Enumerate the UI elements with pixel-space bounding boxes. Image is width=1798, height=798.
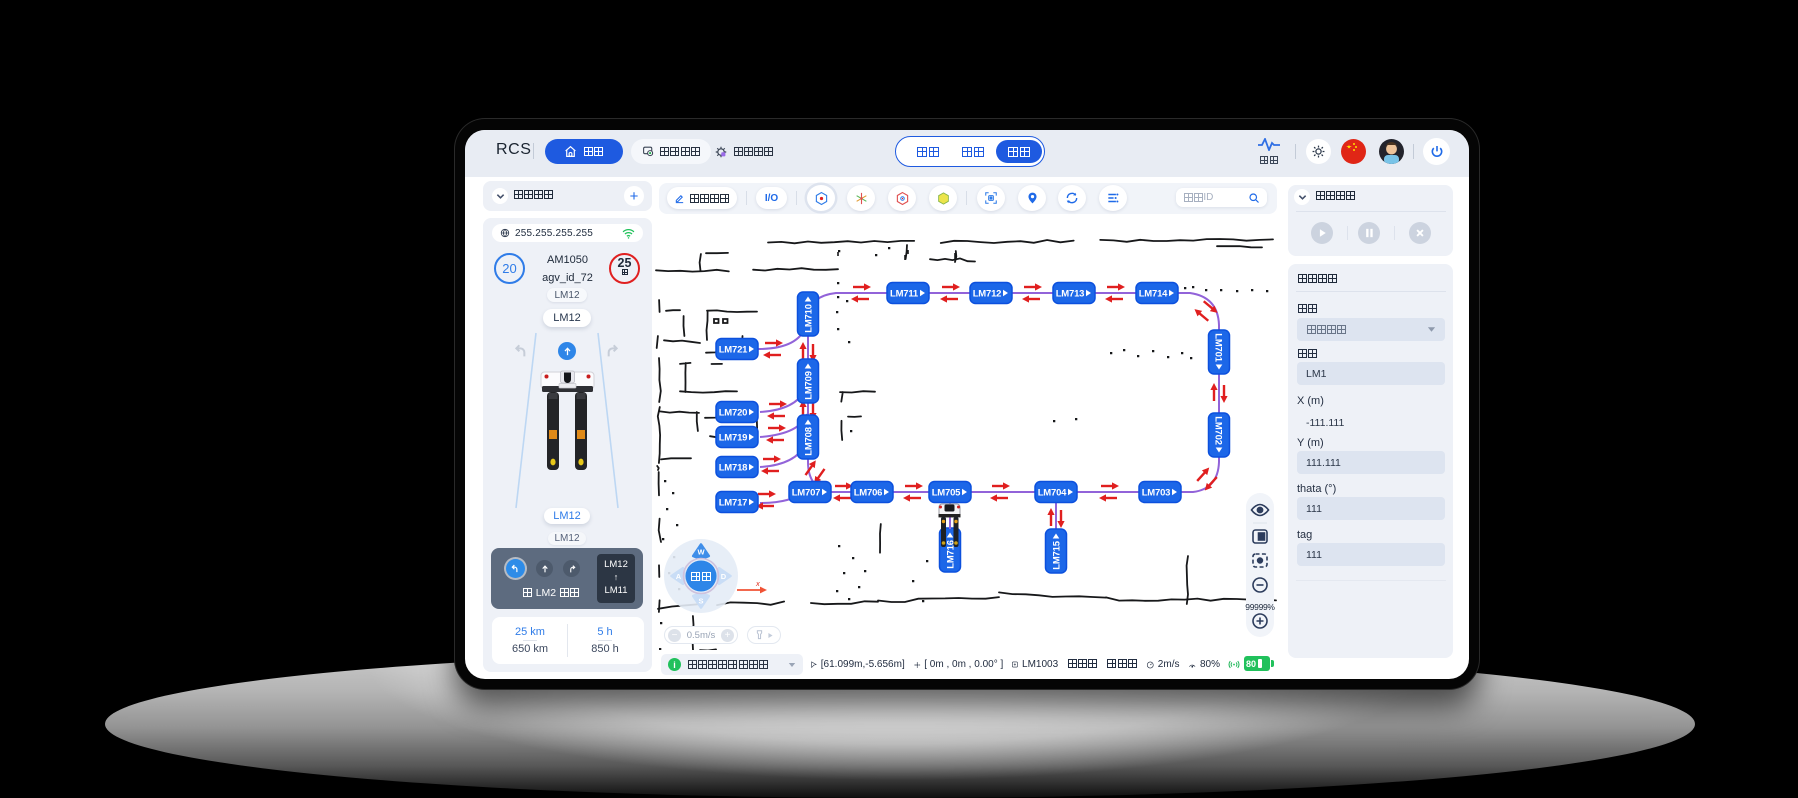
svg-text:LM707: LM707: [792, 488, 821, 499]
svg-text:LM704: LM704: [1038, 488, 1067, 499]
svg-text:LM720: LM720: [719, 408, 748, 419]
svg-text:LM709: LM709: [804, 371, 815, 400]
svg-text:LM702: LM702: [1213, 416, 1224, 445]
svg-text:LM703: LM703: [1142, 488, 1171, 499]
svg-text:LM701: LM701: [1213, 333, 1224, 362]
svg-text:S: S: [698, 597, 703, 606]
svg-text:LM708: LM708: [804, 427, 815, 456]
svg-text:D: D: [721, 572, 727, 581]
svg-text:LM713: LM713: [1056, 289, 1085, 300]
svg-text:LM711: LM711: [890, 289, 919, 300]
svg-text:LM714: LM714: [1139, 289, 1168, 300]
svg-text:LM718: LM718: [719, 463, 748, 474]
svg-text:W: W: [697, 548, 705, 557]
svg-text:LM717: LM717: [719, 498, 748, 509]
svg-text:LM721: LM721: [719, 345, 748, 356]
svg-text:LM715: LM715: [1052, 540, 1063, 569]
svg-text:A: A: [676, 572, 682, 581]
svg-text:LM719: LM719: [719, 433, 748, 444]
svg-text:LM710: LM710: [804, 304, 815, 333]
svg-text:LM705: LM705: [932, 488, 961, 499]
svg-text:LM712: LM712: [973, 289, 1002, 300]
svg-text:x: x: [755, 579, 760, 588]
svg-text:LM706: LM706: [854, 488, 883, 499]
